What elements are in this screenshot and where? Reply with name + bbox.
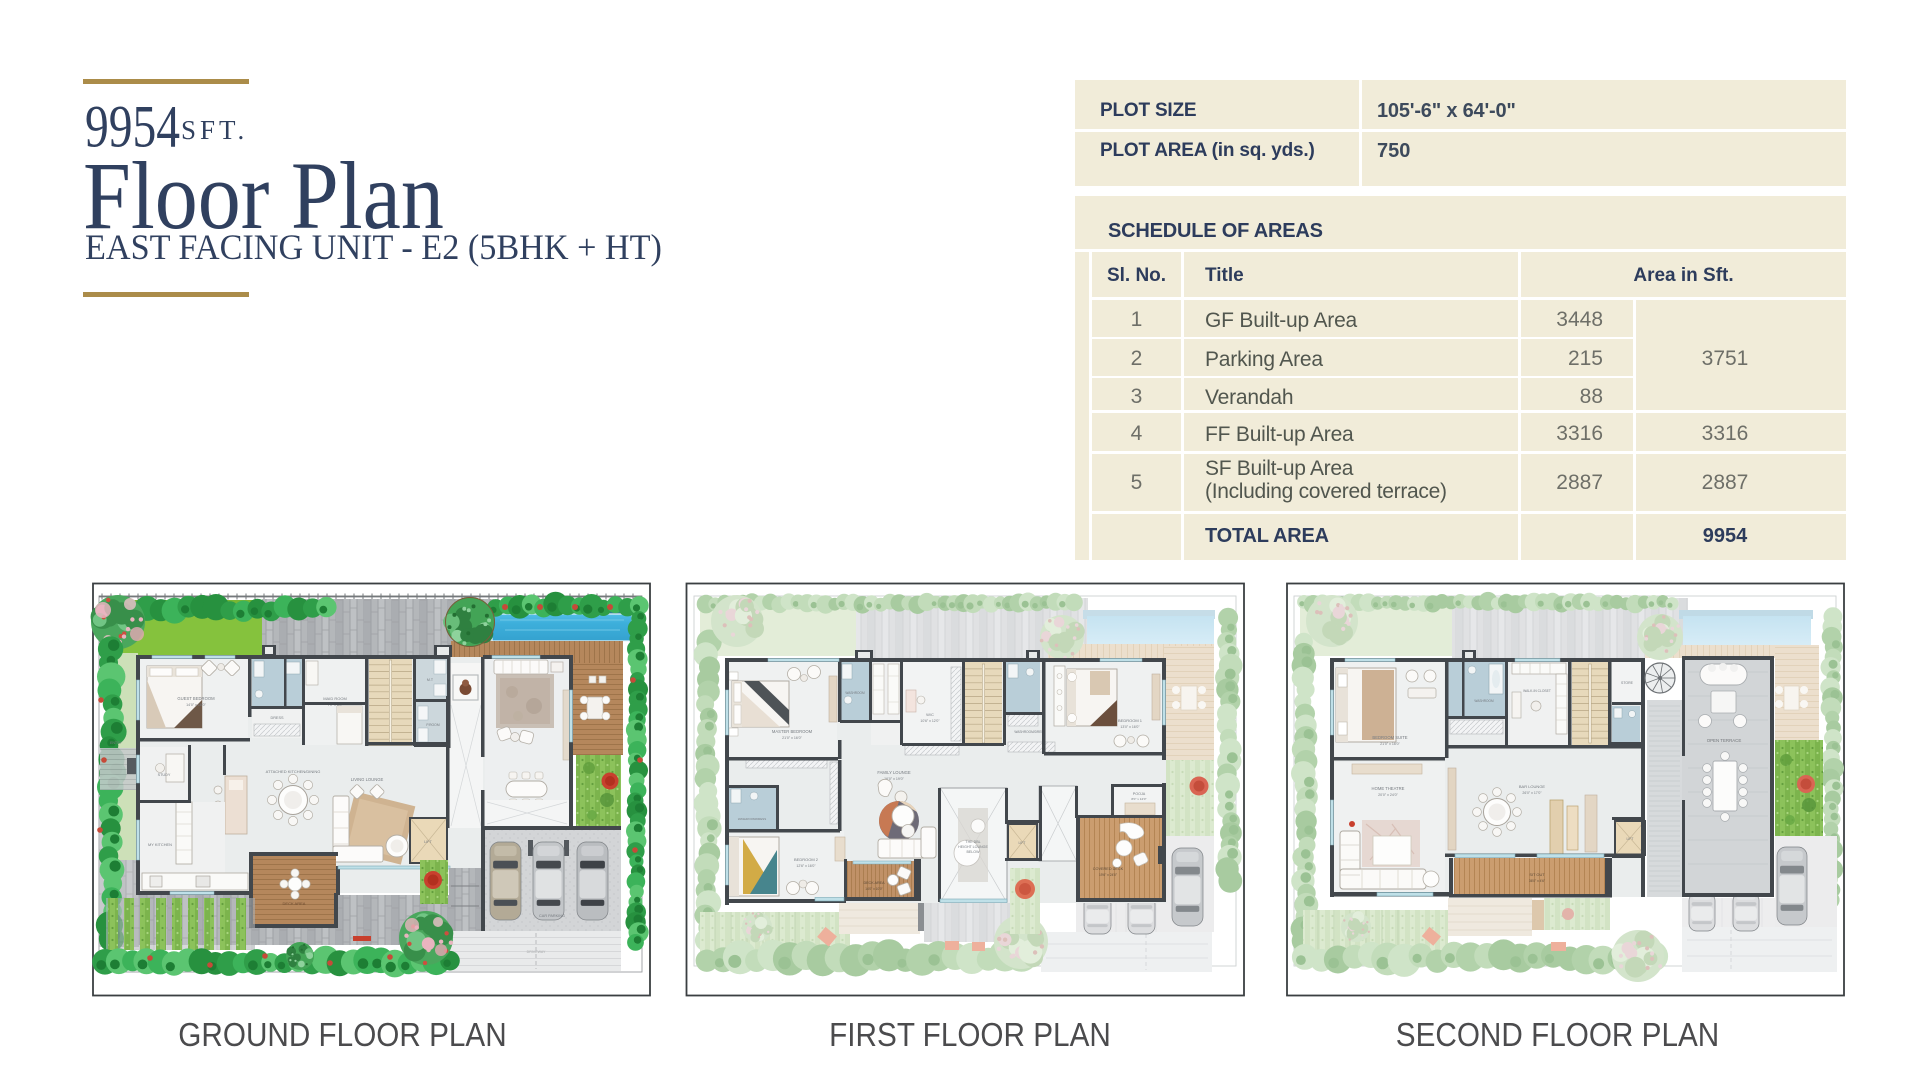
svg-text:BEDROOM SUITE: BEDROOM SUITE [1372,735,1407,740]
svg-text:GUEST BEDROOM: GUEST BEDROOM [177,696,215,701]
svg-text:COVERED DECK: COVERED DECK [1093,867,1124,871]
svg-text:M.T: M.T [427,678,434,682]
svg-text:STUDY: STUDY [158,773,171,777]
svg-text:DECK AREA: DECK AREA [283,901,306,906]
svg-text:MAID ROOM: MAID ROOM [323,696,347,701]
svg-text:LIFT: LIFT [424,840,432,844]
svg-text:26'0" x 17'0": 26'0" x 17'0" [1522,791,1542,795]
svg-text:14'0" x 16'0": 14'0" x 16'0" [186,703,206,707]
svg-text:MY KITCHEN: MY KITCHEN [148,842,172,847]
svg-text:BELOW: BELOW [967,850,981,854]
svg-text:21'0" x 16'0": 21'0" x 16'0" [782,736,802,740]
svg-text:13'0" x 16'0": 13'0" x 16'0" [1120,725,1140,729]
svg-text:BAR LOUNGE: BAR LOUNGE [1519,784,1546,789]
svg-text:OPEN TERRACE: OPEN TERRACE [1707,738,1742,743]
svg-text:DRIVEWAY: DRIVEWAY [527,950,546,954]
svg-text:BEDROOM 2: BEDROOM 2 [794,857,819,862]
svg-text:BEDROOM 1: BEDROOM 1 [1118,718,1143,723]
svg-text:MASTER BEDROOM: MASTER BEDROOM [772,729,813,734]
svg-text:LIVING LOUNGE: LIVING LOUNGE [351,777,384,782]
svg-text:20'0" x 24'0": 20'0" x 24'0" [1378,793,1398,797]
svg-text:WASHROOM/DRESS: WASHROOM/DRESS [1014,730,1045,734]
svg-text:DECK AREA: DECK AREA [863,881,885,885]
svg-text:19'6" x 24'0": 19'6" x 24'0" [1099,873,1118,877]
svg-text:WALK-IN CLOSET: WALK-IN CLOSET [1523,689,1551,693]
svg-text:8'0" x 12'0": 8'0" x 12'0" [1131,797,1146,801]
svg-text:36'0" x 4'6": 36'0" x 4'6" [1529,879,1546,883]
svg-text:FAMILY LOUNGE: FAMILY LOUNGE [877,770,911,775]
svg-text:LIFT: LIFT [1019,841,1026,845]
svg-text:P.ROOM: P.ROOM [426,723,439,727]
svg-text:WASHROOM: WASHROOM [1474,699,1494,703]
svg-text:WASHROOM/DRESS: WASHROOM/DRESS [738,817,766,821]
svg-text:POOJA: POOJA [1133,792,1146,796]
svg-text:DRESS: DRESS [270,716,284,720]
svg-text:STORE: STORE [1621,681,1634,685]
svg-text:10'6" x 12'0": 10'6" x 12'0" [920,719,940,723]
svg-text:HOME THEATRE: HOME THEATRE [1372,786,1405,791]
svg-text:THE DBL: THE DBL [965,840,980,844]
svg-text:SIT OUT: SIT OUT [1529,872,1545,877]
svg-text:21'0" x 16'0": 21'0" x 16'0" [1380,742,1400,746]
svg-text:LIFT: LIFT [1627,837,1634,841]
svg-text:14'0" x 10'0": 14'0" x 10'0" [865,887,882,891]
svg-text:WASHROOM: WASHROOM [845,691,865,695]
svg-text:ENTRY: ENTRY [110,741,123,745]
svg-text:HEIGHT LOUNGE: HEIGHT LOUNGE [958,845,988,849]
svg-text:ATTACHED KITCHEN/DINING: ATTACHED KITCHEN/DINING [266,769,321,774]
svg-text:12'6" x 16'0": 12'6" x 16'0" [796,864,816,868]
svg-text:W/C: W/C [926,712,934,717]
svg-text:CAR PARKING: CAR PARKING [539,914,565,918]
